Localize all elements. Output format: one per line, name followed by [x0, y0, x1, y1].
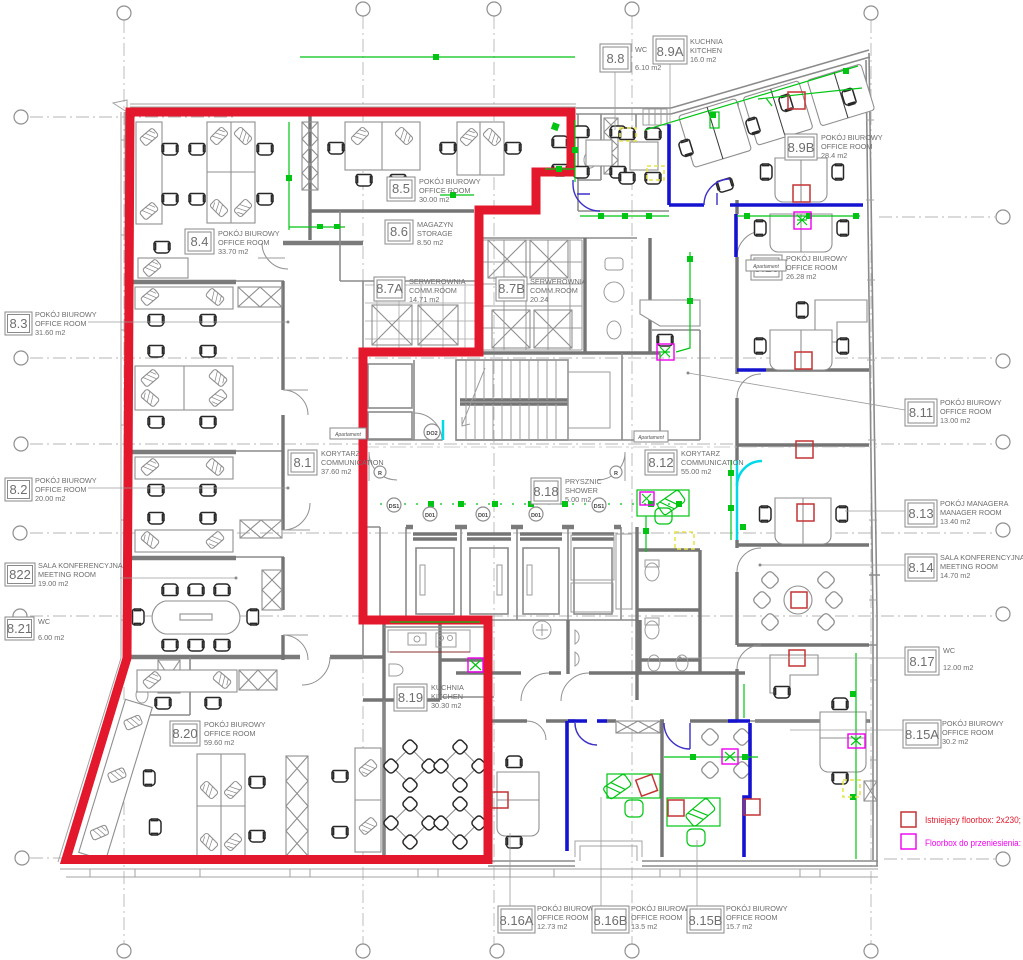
svg-text:30.2 m2: 30.2 m2	[942, 737, 968, 746]
svg-text:5.00 m2: 5.00 m2	[565, 495, 591, 504]
svg-text:20.00 m2: 20.00 m2	[35, 494, 65, 503]
svg-text:12.00 m2: 12.00 m2	[943, 663, 973, 672]
svg-text:OFFICE ROOM: OFFICE ROOM	[631, 913, 682, 922]
svg-text:MANAGER ROOM: MANAGER ROOM	[940, 508, 1002, 517]
svg-text:8.15B: 8.15B	[689, 913, 723, 928]
svg-text:Apartament: Apartament	[637, 435, 664, 441]
svg-text:8.18: 8.18	[533, 484, 558, 499]
svg-text:POKÓJ BIUROWY: POKÓJ BIUROWY	[35, 476, 97, 485]
svg-text:COMMUNICATION: COMMUNICATION	[681, 458, 744, 467]
svg-text:30.30 m2: 30.30 m2	[431, 701, 461, 710]
svg-text:8.50 m2: 8.50 m2	[417, 238, 443, 247]
svg-text:PRYSZNIC: PRYSZNIC	[565, 477, 602, 486]
svg-text:8.4: 8.4	[190, 234, 208, 249]
svg-text:37.60 m2: 37.60 m2	[321, 467, 351, 476]
svg-text:STORAGE: STORAGE	[417, 229, 453, 238]
svg-text:Apartament: Apartament	[752, 264, 779, 270]
svg-text:DS1: DS1	[594, 504, 605, 510]
svg-text:Istniejący floorbox: 2x230;: Istniejący floorbox: 2x230;	[925, 815, 1021, 826]
svg-text:POKÓJ BIUROWY: POKÓJ BIUROWY	[218, 229, 280, 238]
svg-text:KITCHEN: KITCHEN	[690, 46, 722, 55]
svg-text:POKÓJ BIUROWY: POKÓJ BIUROWY	[204, 720, 266, 729]
svg-text:D01: D01	[478, 513, 488, 519]
svg-text:8.7A: 8.7A	[376, 281, 403, 296]
svg-text:8.9A: 8.9A	[657, 44, 684, 59]
svg-text:8.11: 8.11	[909, 405, 933, 420]
svg-text:8.2: 8.2	[9, 482, 27, 497]
svg-text:8.12: 8.12	[648, 455, 673, 470]
svg-text:POKÓJ BIUROWY: POKÓJ BIUROWY	[726, 904, 788, 913]
svg-text:8.19: 8.19	[398, 690, 423, 705]
svg-text:POKÓJ BIUROWY: POKÓJ BIUROWY	[537, 904, 599, 913]
svg-text:D01: D01	[425, 513, 435, 519]
svg-text:OFFICE ROOM: OFFICE ROOM	[35, 485, 86, 494]
svg-text:8.3: 8.3	[9, 316, 27, 331]
svg-text:R: R	[378, 471, 382, 477]
svg-text:8.15A: 8.15A	[905, 727, 939, 742]
svg-text:MAGAZYN: MAGAZYN	[417, 220, 453, 229]
svg-text:8.16B: 8.16B	[594, 913, 628, 928]
svg-text:SERWEROWNIA: SERWEROWNIA	[409, 277, 466, 286]
svg-text:12.73 m2: 12.73 m2	[537, 922, 567, 931]
svg-text:26.28 m2: 26.28 m2	[786, 272, 816, 281]
svg-text:14.71 m2: 14.71 m2	[409, 295, 439, 304]
svg-text:WC: WC	[635, 45, 647, 54]
svg-text:31.60 m2: 31.60 m2	[35, 328, 65, 337]
svg-text:15.7 m2: 15.7 m2	[726, 922, 752, 931]
svg-text:OFFICE ROOM: OFFICE ROOM	[786, 263, 837, 272]
svg-text:D01: D01	[531, 513, 541, 519]
svg-text:COMM.ROOM: COMM.ROOM	[409, 286, 457, 295]
svg-text:8.1: 8.1	[293, 455, 311, 470]
svg-text:20.24: 20.24	[530, 295, 548, 304]
svg-text:OFFICE ROOM: OFFICE ROOM	[726, 913, 777, 922]
svg-text:OFFICE ROOM: OFFICE ROOM	[419, 186, 470, 195]
svg-text:POKÓJ BIUROWY: POKÓJ BIUROWY	[942, 719, 1004, 728]
svg-text:6.00 m2: 6.00 m2	[38, 633, 64, 642]
svg-text:SALA KONFERENCYJNA: SALA KONFERENCYJNA	[940, 553, 1023, 562]
svg-text:33.70 m2: 33.70 m2	[218, 247, 248, 256]
svg-text:8.8: 8.8	[606, 51, 624, 66]
svg-text:OFFICE ROOM: OFFICE ROOM	[218, 238, 269, 247]
svg-text:8.14: 8.14	[908, 560, 933, 575]
svg-text:KUCHNIA: KUCHNIA	[431, 683, 464, 692]
svg-text:OFFICE ROOM: OFFICE ROOM	[35, 319, 86, 328]
svg-text:8.16A: 8.16A	[500, 913, 534, 928]
svg-text:8.13: 8.13	[908, 506, 933, 521]
svg-text:POKÓJ BIUROWY: POKÓJ BIUROWY	[940, 398, 1002, 407]
svg-text:8.5: 8.5	[392, 181, 410, 196]
svg-text:POKÓJ BIUROWY: POKÓJ BIUROWY	[35, 310, 97, 319]
svg-text:OFFICE ROOM: OFFICE ROOM	[940, 407, 991, 416]
svg-text:8.6: 8.6	[390, 224, 408, 239]
svg-text:MEETING ROOM: MEETING ROOM	[38, 570, 96, 579]
svg-text:SALA KONFERENCYJNA: SALA KONFERENCYJNA	[38, 561, 123, 570]
svg-text:Apartament: Apartament	[334, 432, 361, 438]
svg-text:13.40 m2: 13.40 m2	[940, 517, 970, 526]
svg-text:R: R	[614, 471, 618, 477]
svg-text:8.7B: 8.7B	[498, 281, 525, 296]
svg-text:WC: WC	[38, 617, 50, 626]
svg-text:8.20: 8.20	[172, 726, 197, 741]
svg-text:OFFICE ROOM: OFFICE ROOM	[942, 728, 993, 737]
svg-text:COMMUNICATION: COMMUNICATION	[321, 458, 384, 467]
svg-text:OFFICE ROOM: OFFICE ROOM	[821, 142, 872, 151]
svg-text:POKÓJ BIUROWY: POKÓJ BIUROWY	[821, 133, 883, 142]
svg-text:WC: WC	[943, 646, 955, 655]
svg-text:KORYTARZ: KORYTARZ	[321, 449, 361, 458]
svg-text:Floorbox do przeniesienia:: Floorbox do przeniesienia:	[925, 838, 1021, 849]
svg-text:SHOWER: SHOWER	[565, 486, 598, 495]
svg-text:13.5 m2: 13.5 m2	[631, 922, 657, 931]
svg-text:822: 822	[9, 567, 31, 582]
svg-text:KORYTARZ: KORYTARZ	[681, 449, 721, 458]
svg-text:16.0 m2: 16.0 m2	[690, 55, 716, 64]
svg-text:OFFICE ROOM: OFFICE ROOM	[204, 729, 255, 738]
svg-text:59.60 m2: 59.60 m2	[204, 738, 234, 747]
svg-text:DS1: DS1	[389, 504, 400, 510]
svg-text:POKÓJ MANAGERA: POKÓJ MANAGERA	[940, 499, 1009, 508]
svg-text:KITCHEN: KITCHEN	[431, 692, 463, 701]
svg-text:MEETING ROOM: MEETING ROOM	[940, 562, 998, 571]
svg-text:POKÓJ BIUROWY: POKÓJ BIUROWY	[786, 254, 848, 263]
svg-text:30.00 m2: 30.00 m2	[419, 195, 449, 204]
svg-text:8.21: 8.21	[7, 621, 32, 636]
svg-text:13.00 m2: 13.00 m2	[940, 416, 970, 425]
svg-text:POKÓJ BIUROWY: POKÓJ BIUROWY	[419, 177, 481, 186]
svg-text:8.9B: 8.9B	[788, 140, 815, 155]
svg-text:DO2: DO2	[426, 431, 437, 437]
svg-text:KUCHNIA: KUCHNIA	[690, 37, 723, 46]
svg-text:OFFICE ROOM: OFFICE ROOM	[537, 913, 588, 922]
svg-text:POKÓJ BIUROWY: POKÓJ BIUROWY	[631, 904, 693, 913]
svg-text:14.70 m2: 14.70 m2	[940, 571, 970, 580]
svg-text:8.17: 8.17	[909, 654, 934, 669]
svg-text:COMM.ROOM: COMM.ROOM	[530, 286, 578, 295]
svg-text:28.4 m2: 28.4 m2	[821, 151, 847, 160]
svg-text:55.00 m2: 55.00 m2	[681, 467, 711, 476]
svg-text:19.00 m2: 19.00 m2	[38, 579, 68, 588]
svg-text:SERWEROWNIA: SERWEROWNIA	[530, 277, 587, 286]
